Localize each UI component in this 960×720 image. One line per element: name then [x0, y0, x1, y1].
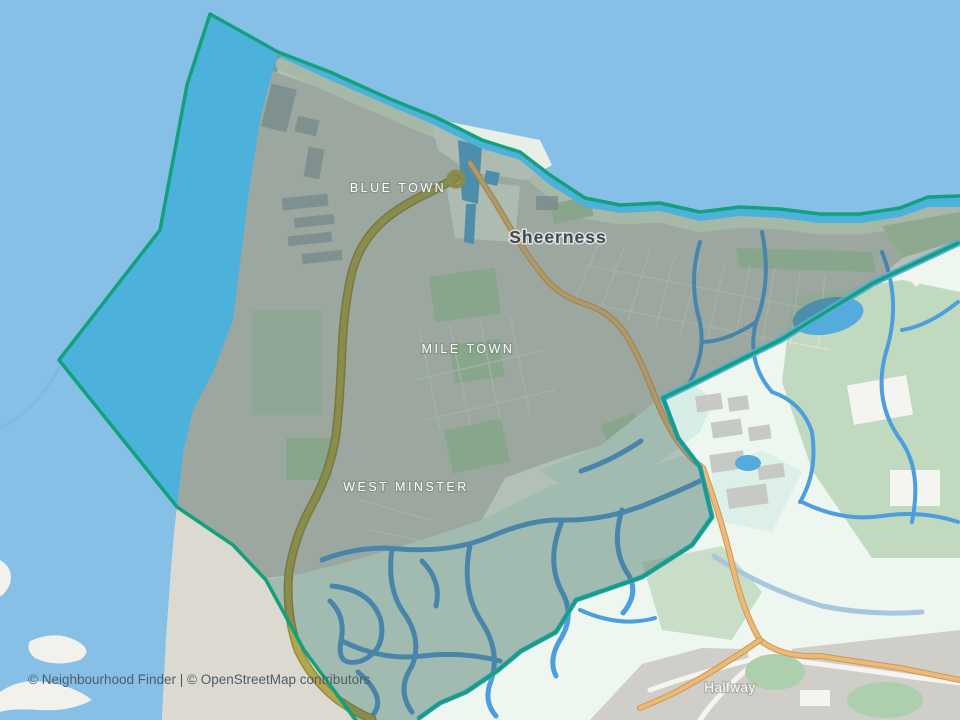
label-halfway: Halfway — [704, 680, 756, 695]
label-west-minster: WEST MINSTER — [343, 480, 469, 494]
map-canvas[interactable]: BLUE TOWN Sheerness MILE TOWN WEST MINST… — [0, 0, 960, 720]
pond-small — [735, 455, 761, 471]
label-blue-town: BLUE TOWN — [350, 181, 446, 195]
map-svg: BLUE TOWN Sheerness MILE TOWN WEST MINST… — [0, 0, 960, 720]
label-mile-town: MILE TOWN — [422, 342, 515, 356]
map-attribution: © Neighbourhood Finder | © OpenStreetMap… — [28, 672, 370, 687]
label-sheerness: Sheerness — [509, 227, 607, 247]
